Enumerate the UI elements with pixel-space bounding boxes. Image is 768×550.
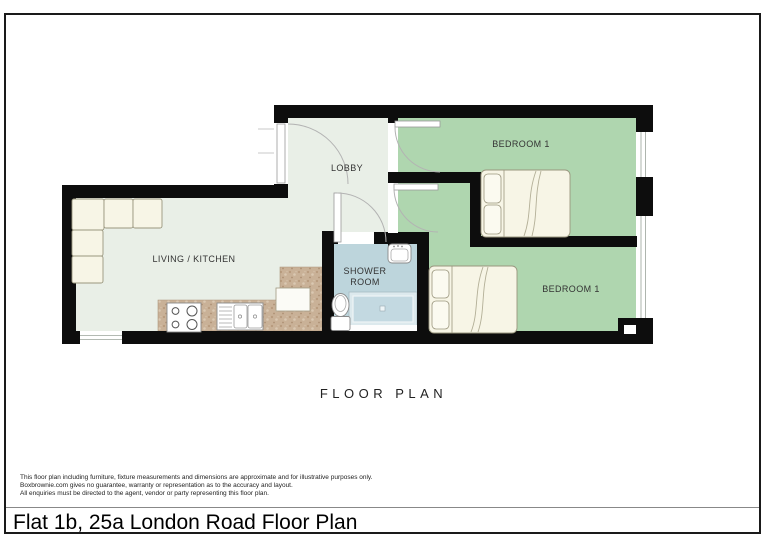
toilet	[331, 294, 350, 331]
bed-bedroom-bottom	[429, 266, 517, 333]
disclaimer: This floor plan including furniture, fix…	[20, 474, 440, 498]
room-label-shower-line2: ROOM	[350, 277, 380, 287]
window-bedroom-top	[637, 132, 653, 177]
bathroom-sink	[388, 244, 411, 263]
room-label-living-kitchen: LIVING / KITCHEN	[153, 254, 236, 264]
page-title: Flat 1b, 25a London Road Floor Plan	[13, 511, 753, 535]
title-separator	[5, 507, 761, 508]
plan-heading: FLOOR PLAN	[4, 386, 763, 401]
hob	[167, 303, 201, 332]
bed-bedroom-top	[481, 170, 570, 237]
entry-steps	[258, 129, 274, 153]
shower-drain	[380, 306, 385, 311]
counter-appliance	[276, 288, 310, 311]
disclaimer-line: This floor plan including furniture, fix…	[20, 474, 440, 482]
room-label-lobby: LOBBY	[331, 163, 363, 173]
disclaimer-line: All enquiries must be directed to the ag…	[20, 490, 440, 498]
kitchen-sink	[217, 303, 263, 330]
room-label-bedroom-bottom: BEDROOM 1	[542, 284, 600, 294]
room-label-shower-line1: SHOWER	[344, 266, 387, 276]
window-living	[80, 331, 122, 344]
disclaimer-line: Boxbrownie.com gives no guarantee, warra…	[20, 482, 440, 490]
corner-vent	[624, 325, 636, 334]
room-label-bedroom-top: BEDROOM 1	[492, 139, 550, 149]
window-bedroom-bottom	[637, 216, 653, 318]
floor-plan-drawing: LIVING / KITCHEN LOBBY BEDROOM 1 BEDROOM…	[0, 0, 768, 550]
floor-plan-page: LIVING / KITCHEN LOBBY BEDROOM 1 BEDROOM…	[0, 0, 768, 550]
